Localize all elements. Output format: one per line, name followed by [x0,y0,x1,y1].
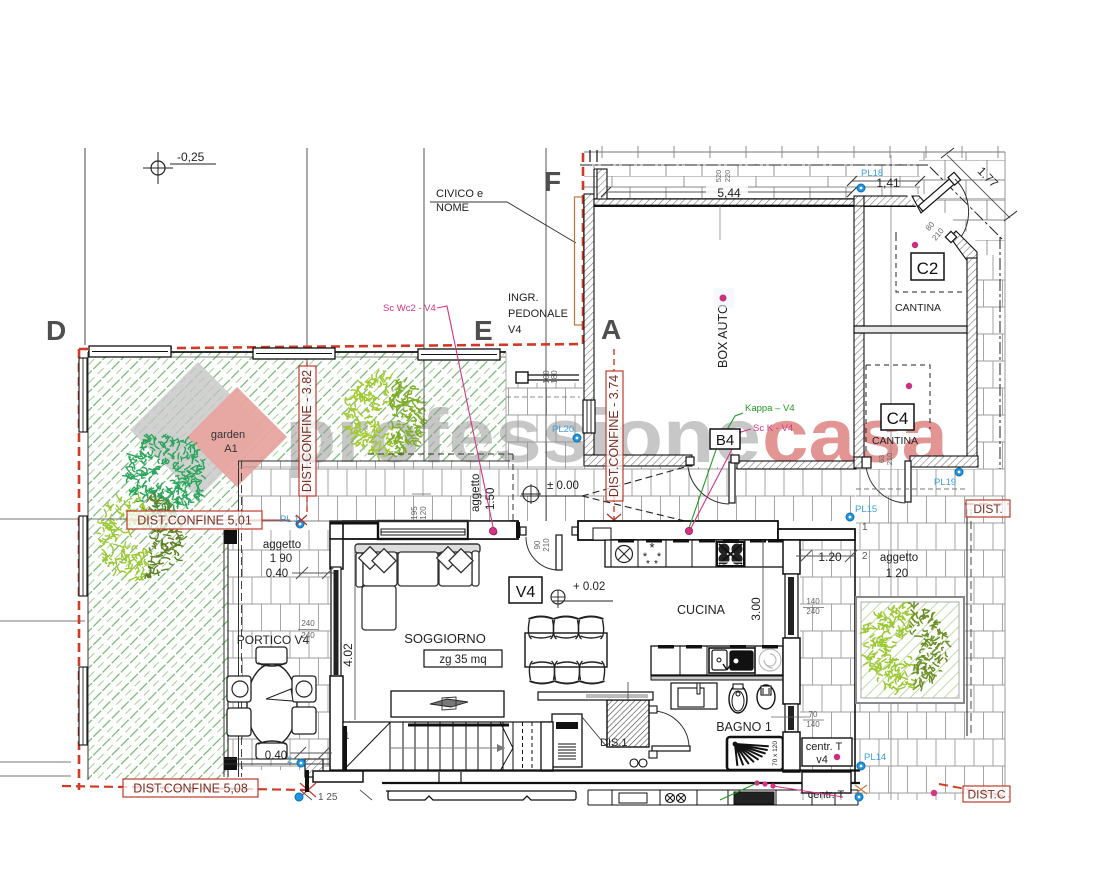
svg-text:0.40: 0.40 [266,568,288,580]
svg-text:220: 220 [723,170,732,183]
svg-text:PL14: PL14 [864,752,886,763]
svg-text:garden: garden [211,429,245,441]
svg-text:120: 120 [419,506,428,520]
svg-text:195: 195 [410,506,419,520]
svg-text:240: 240 [806,607,820,616]
svg-text:*: * [649,540,654,555]
svg-text:180: 180 [550,370,559,384]
svg-text:B4: B4 [716,432,734,449]
svg-text:PL19: PL19 [934,477,956,488]
svg-text:DIST.CONFINE 5,08: DIST.CONFINE 5,08 [133,782,248,796]
svg-text:BAGNO 1: BAGNO 1 [716,720,772,734]
svg-text:5,44: 5,44 [717,186,741,200]
svg-text:140: 140 [806,597,820,606]
svg-text:1 25: 1 25 [318,792,338,803]
svg-text:DIST.CONFINE - 3.82: DIST.CONFINE - 3.82 [300,370,314,492]
svg-text:BOX AUTO: BOX AUTO [716,304,730,368]
svg-text:DIST.CONFINE 5,01: DIST.CONFINE 5,01 [137,514,252,528]
svg-text:*: * [646,559,650,570]
svg-text:aggetto: aggetto [263,539,301,551]
svg-text:Sc K - V4: Sc K - V4 [753,423,793,434]
svg-text:centr. T: centr. T [806,741,843,753]
svg-text:CUCINA: CUCINA [677,603,726,617]
svg-text:240: 240 [301,619,315,628]
svg-text:aggetto: aggetto [470,474,482,512]
svg-text:CANTINA: CANTINA [872,435,918,447]
svg-text:CANTINA: CANTINA [895,302,941,314]
svg-text:DIST.C: DIST.C [967,787,1005,801]
svg-text:2: 2 [287,755,292,766]
svg-text:DIST.CONFINE - 3.74: DIST.CONFINE - 3.74 [607,375,621,497]
svg-text:1 20: 1 20 [886,568,908,580]
svg-text:PL20: PL20 [552,424,574,435]
svg-text:D: D [46,315,66,346]
svg-text:F: F [544,166,561,197]
svg-text:PL18: PL18 [861,168,883,179]
svg-text:V4: V4 [508,324,521,336]
svg-text:C2: C2 [917,259,939,278]
svg-text:70 x 120: 70 x 120 [772,741,779,766]
svg-text:240: 240 [301,631,315,640]
svg-text:520: 520 [714,170,723,183]
svg-text:PORTICO V4: PORTICO V4 [237,633,310,647]
svg-text:140: 140 [806,720,820,729]
svg-text:v4: v4 [816,754,828,766]
svg-text:-0,25: -0,25 [177,150,205,164]
svg-text:V4: V4 [516,584,536,601]
svg-text:210: 210 [542,538,551,552]
svg-text:*: * [654,559,658,570]
svg-text:DIST.: DIST. [973,502,1002,516]
svg-text:INGR.: INGR. [508,292,539,304]
svg-text:± 0.00: ± 0.00 [547,480,579,492]
svg-text:2: 2 [862,551,868,562]
svg-text:centr. T: centr. T [808,789,845,801]
svg-text:210: 210 [885,453,894,466]
svg-text:1.20: 1.20 [818,550,842,564]
svg-text:SOGGIORNO: SOGGIORNO [404,631,486,646]
svg-text:E: E [474,315,493,346]
svg-text:PL15: PL15 [855,504,877,515]
svg-text:4.02: 4.02 [341,643,355,667]
svg-text:Sc Wc2 - V4: Sc Wc2 - V4 [383,303,436,314]
svg-text:0.40: 0.40 [265,750,287,762]
svg-text:NOME: NOME [436,202,469,214]
svg-text:C4: C4 [887,409,909,428]
svg-text:A: A [601,314,621,345]
svg-text:CIVICO e: CIVICO e [436,188,483,200]
svg-text:1: 1 [862,522,868,533]
svg-text:aggetto: aggetto [880,552,918,564]
svg-text:3.00: 3.00 [749,597,763,621]
svg-text:+ 0.02: + 0.02 [573,581,605,593]
svg-text:zg 35 mq: zg 35 mq [439,654,486,666]
svg-text:PEDONALE: PEDONALE [508,308,568,320]
svg-text:A1: A1 [224,443,237,455]
svg-text:70: 70 [809,710,818,719]
svg-text:1 90: 1 90 [270,553,292,565]
svg-text:90: 90 [533,540,542,549]
svg-text:Kappa – V4: Kappa – V4 [745,403,795,414]
